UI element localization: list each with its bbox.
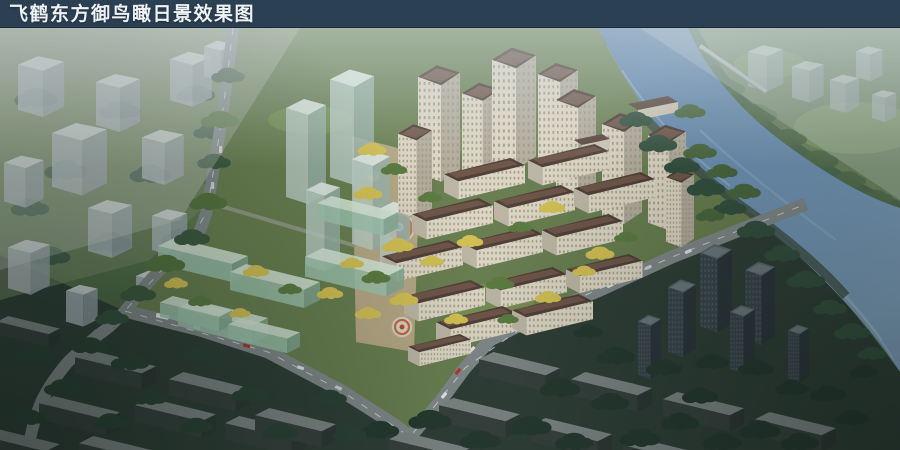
aerial-scene [0, 0, 900, 450]
rendering-canvas: 飞鹤东方御鸟瞰日景效果图 [0, 0, 900, 450]
atmosphere [0, 0, 900, 450]
title-text: 飞鹤东方御鸟瞰日景效果图 [0, 0, 255, 28]
title-bar: 飞鹤东方御鸟瞰日景效果图 [0, 0, 900, 28]
